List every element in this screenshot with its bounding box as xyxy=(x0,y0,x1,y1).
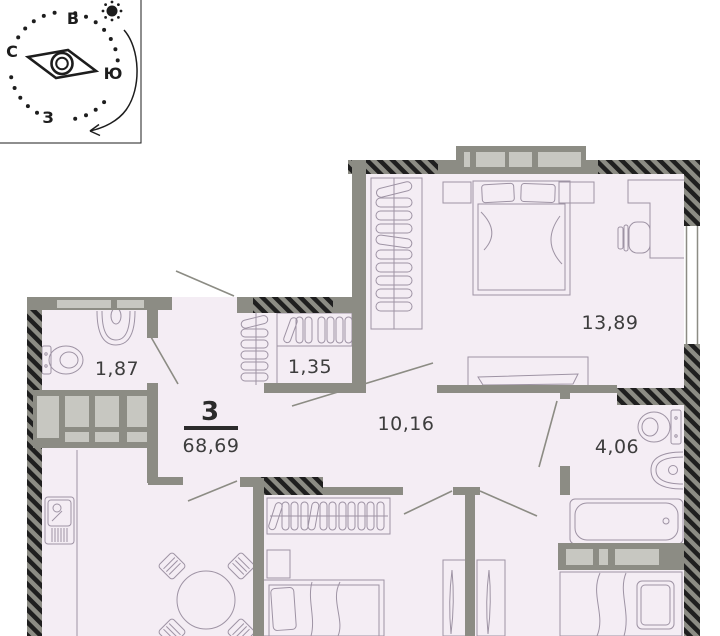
hatched-wall xyxy=(684,160,700,226)
compass-letter-west: З xyxy=(42,108,53,127)
window xyxy=(684,226,700,344)
floor-plan-page: В С Ю З xyxy=(0,0,720,636)
room-label-closet: 1,35 xyxy=(288,356,332,378)
hatched-wall xyxy=(253,297,333,313)
room-label-wc: 1,87 xyxy=(95,358,139,380)
hatched-wall xyxy=(684,344,700,636)
rooms-count: 3 xyxy=(201,397,219,427)
compass-letter-east: В xyxy=(67,9,79,28)
compass-needle xyxy=(28,50,96,78)
room-label-bedroom: 13,89 xyxy=(582,312,639,334)
floor-plan-canvas: В С Ю З xyxy=(0,0,720,636)
compass-letter-north: С xyxy=(6,42,18,61)
room-label-bathroom: 4,06 xyxy=(595,436,639,458)
title-divider xyxy=(184,426,238,430)
total-area: 68,69 xyxy=(183,435,240,457)
hatched-wall xyxy=(27,297,42,636)
door-swing-entry xyxy=(176,271,234,296)
window xyxy=(456,146,586,174)
vent-shaft xyxy=(33,390,150,448)
dining-table-icon xyxy=(177,571,235,629)
sun-icon xyxy=(102,1,123,22)
hatched-wall xyxy=(617,388,684,405)
vent-shaft xyxy=(558,543,684,570)
compass-letter-south: Ю xyxy=(104,64,123,83)
hatched-wall xyxy=(257,477,323,495)
room-label-hallway: 10,16 xyxy=(378,413,435,435)
compass-rose: В С Ю З xyxy=(0,0,141,143)
